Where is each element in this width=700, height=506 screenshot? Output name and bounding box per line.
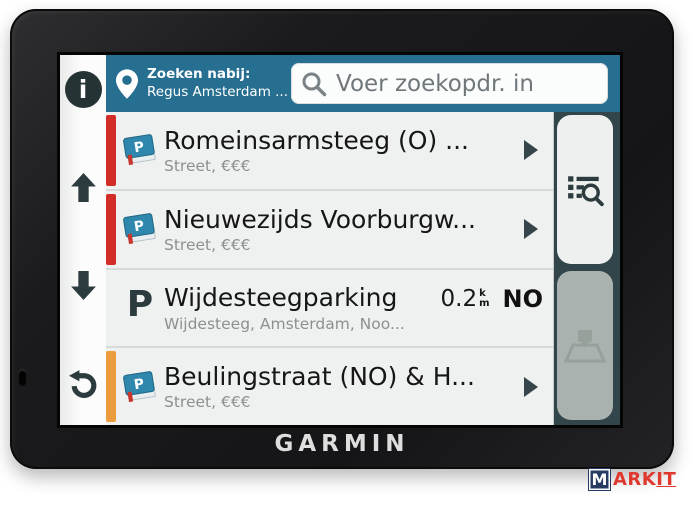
parking-book-icon: P <box>121 133 159 167</box>
device-screen: i <box>60 55 620 425</box>
watermark-m-box: M <box>588 468 611 491</box>
results-body: P Romeinsarmsteeg (O) ... Street, €€€ <box>106 112 620 425</box>
result-title: Beulingstraat (NO) & H... <box>164 362 475 391</box>
location-pin-icon <box>116 69 138 99</box>
result-item[interactable]: P Nieuwezijds Voorburgw... Street, €€€ <box>106 189 553 268</box>
result-texts: Wijdesteegparking 0.2 k m NO <box>164 270 543 347</box>
garmin-device: i <box>10 9 674 469</box>
compass-direction: NO <box>503 285 544 313</box>
search-header: Zoeken nabij: Regus Amsterdam ... Voer z… <box>106 55 620 112</box>
parking-book-icon: P <box>121 370 159 404</box>
product-photo: i <box>0 0 700 506</box>
category-stripe <box>106 115 116 186</box>
result-texts: Romeinsarmsteeg (O) ... Street, €€€ <box>164 112 519 189</box>
search-list-icon <box>566 173 604 207</box>
parking-book-icon: P <box>121 212 159 246</box>
screen-content: Zoeken nabij: Regus Amsterdam ... Voer z… <box>106 55 620 425</box>
search-near-button[interactable]: Zoeken nabij: Regus Amsterdam ... <box>116 66 291 101</box>
search-placeholder: Voer zoekopdr. in <box>336 71 534 97</box>
poi-icon-cell: P <box>116 191 164 268</box>
result-title: Nieuwezijds Voorburgw... <box>164 205 476 234</box>
search-near-label: Zoeken nabij: <box>147 66 288 84</box>
result-title: Wijdesteegparking <box>164 283 397 312</box>
microphone-hole <box>18 369 27 386</box>
watermark-end: IT <box>656 469 676 490</box>
results-list: P Romeinsarmsteeg (O) ... Street, €€€ <box>106 112 554 425</box>
unit-bottom: m <box>479 299 489 309</box>
result-item[interactable]: P Romeinsarmsteeg (O) ... Street, €€€ <box>106 112 553 189</box>
distance-group: 0.2 k m NO <box>433 285 544 313</box>
info-letter: i <box>79 75 88 104</box>
back-button[interactable] <box>63 363 103 403</box>
info-button[interactable]: i <box>63 69 103 109</box>
arrow-down-icon <box>70 270 97 301</box>
result-title: Romeinsarmsteeg (O) ... <box>164 126 469 155</box>
result-item[interactable]: P Wijdesteegparking 0.2 k m <box>106 268 553 347</box>
right-tab-column <box>554 112 620 425</box>
tab-search-results[interactable] <box>557 115 613 264</box>
poi-icon-cell: P <box>116 112 164 189</box>
result-texts: Nieuwezijds Voorburgw... Street, €€€ <box>164 191 519 268</box>
chevron-right-icon <box>519 191 543 268</box>
markit-watermark: MARKIT <box>588 468 676 491</box>
result-subtitle: Street, €€€ <box>164 236 519 254</box>
tab-map[interactable] <box>557 271 613 420</box>
result-subtitle: Street, €€€ <box>164 393 519 411</box>
arrow-up-icon <box>70 172 97 203</box>
distance-unit: k m <box>479 289 489 308</box>
watermark-mid: ARK <box>613 469 656 490</box>
map-pin-icon <box>563 329 607 363</box>
poi-icon-cell: P <box>116 348 164 425</box>
scroll-down-button[interactable] <box>63 265 103 305</box>
scroll-up-button[interactable] <box>63 167 103 207</box>
distance-value: 0.2 <box>441 286 478 312</box>
garmin-logo: GARMIN <box>10 431 674 457</box>
chevron-right-icon <box>519 348 543 425</box>
result-subtitle: Wijdesteeg, Amsterdam, Noo... <box>164 315 543 333</box>
poi-icon-cell: P <box>116 270 164 347</box>
category-stripe <box>106 273 116 344</box>
search-near-texts: Zoeken nabij: Regus Amsterdam ... <box>147 66 288 101</box>
result-item[interactable]: P Beulingstraat (NO) & H... Street, €€€ <box>106 346 553 425</box>
left-toolbar: i <box>60 55 106 425</box>
search-input[interactable]: Voer zoekopdr. in <box>291 63 608 104</box>
category-stripe <box>106 194 116 265</box>
info-icon: i <box>65 71 102 108</box>
search-icon <box>301 71 327 97</box>
result-texts: Beulingstraat (NO) & H... Street, €€€ <box>164 348 519 425</box>
category-stripe <box>106 351 116 422</box>
search-near-value: Regus Amsterdam ... <box>147 84 288 102</box>
result-subtitle: Street, €€€ <box>164 157 519 175</box>
back-icon <box>68 369 99 398</box>
parking-letter-icon: P <box>127 287 153 323</box>
chevron-right-icon <box>519 112 543 189</box>
